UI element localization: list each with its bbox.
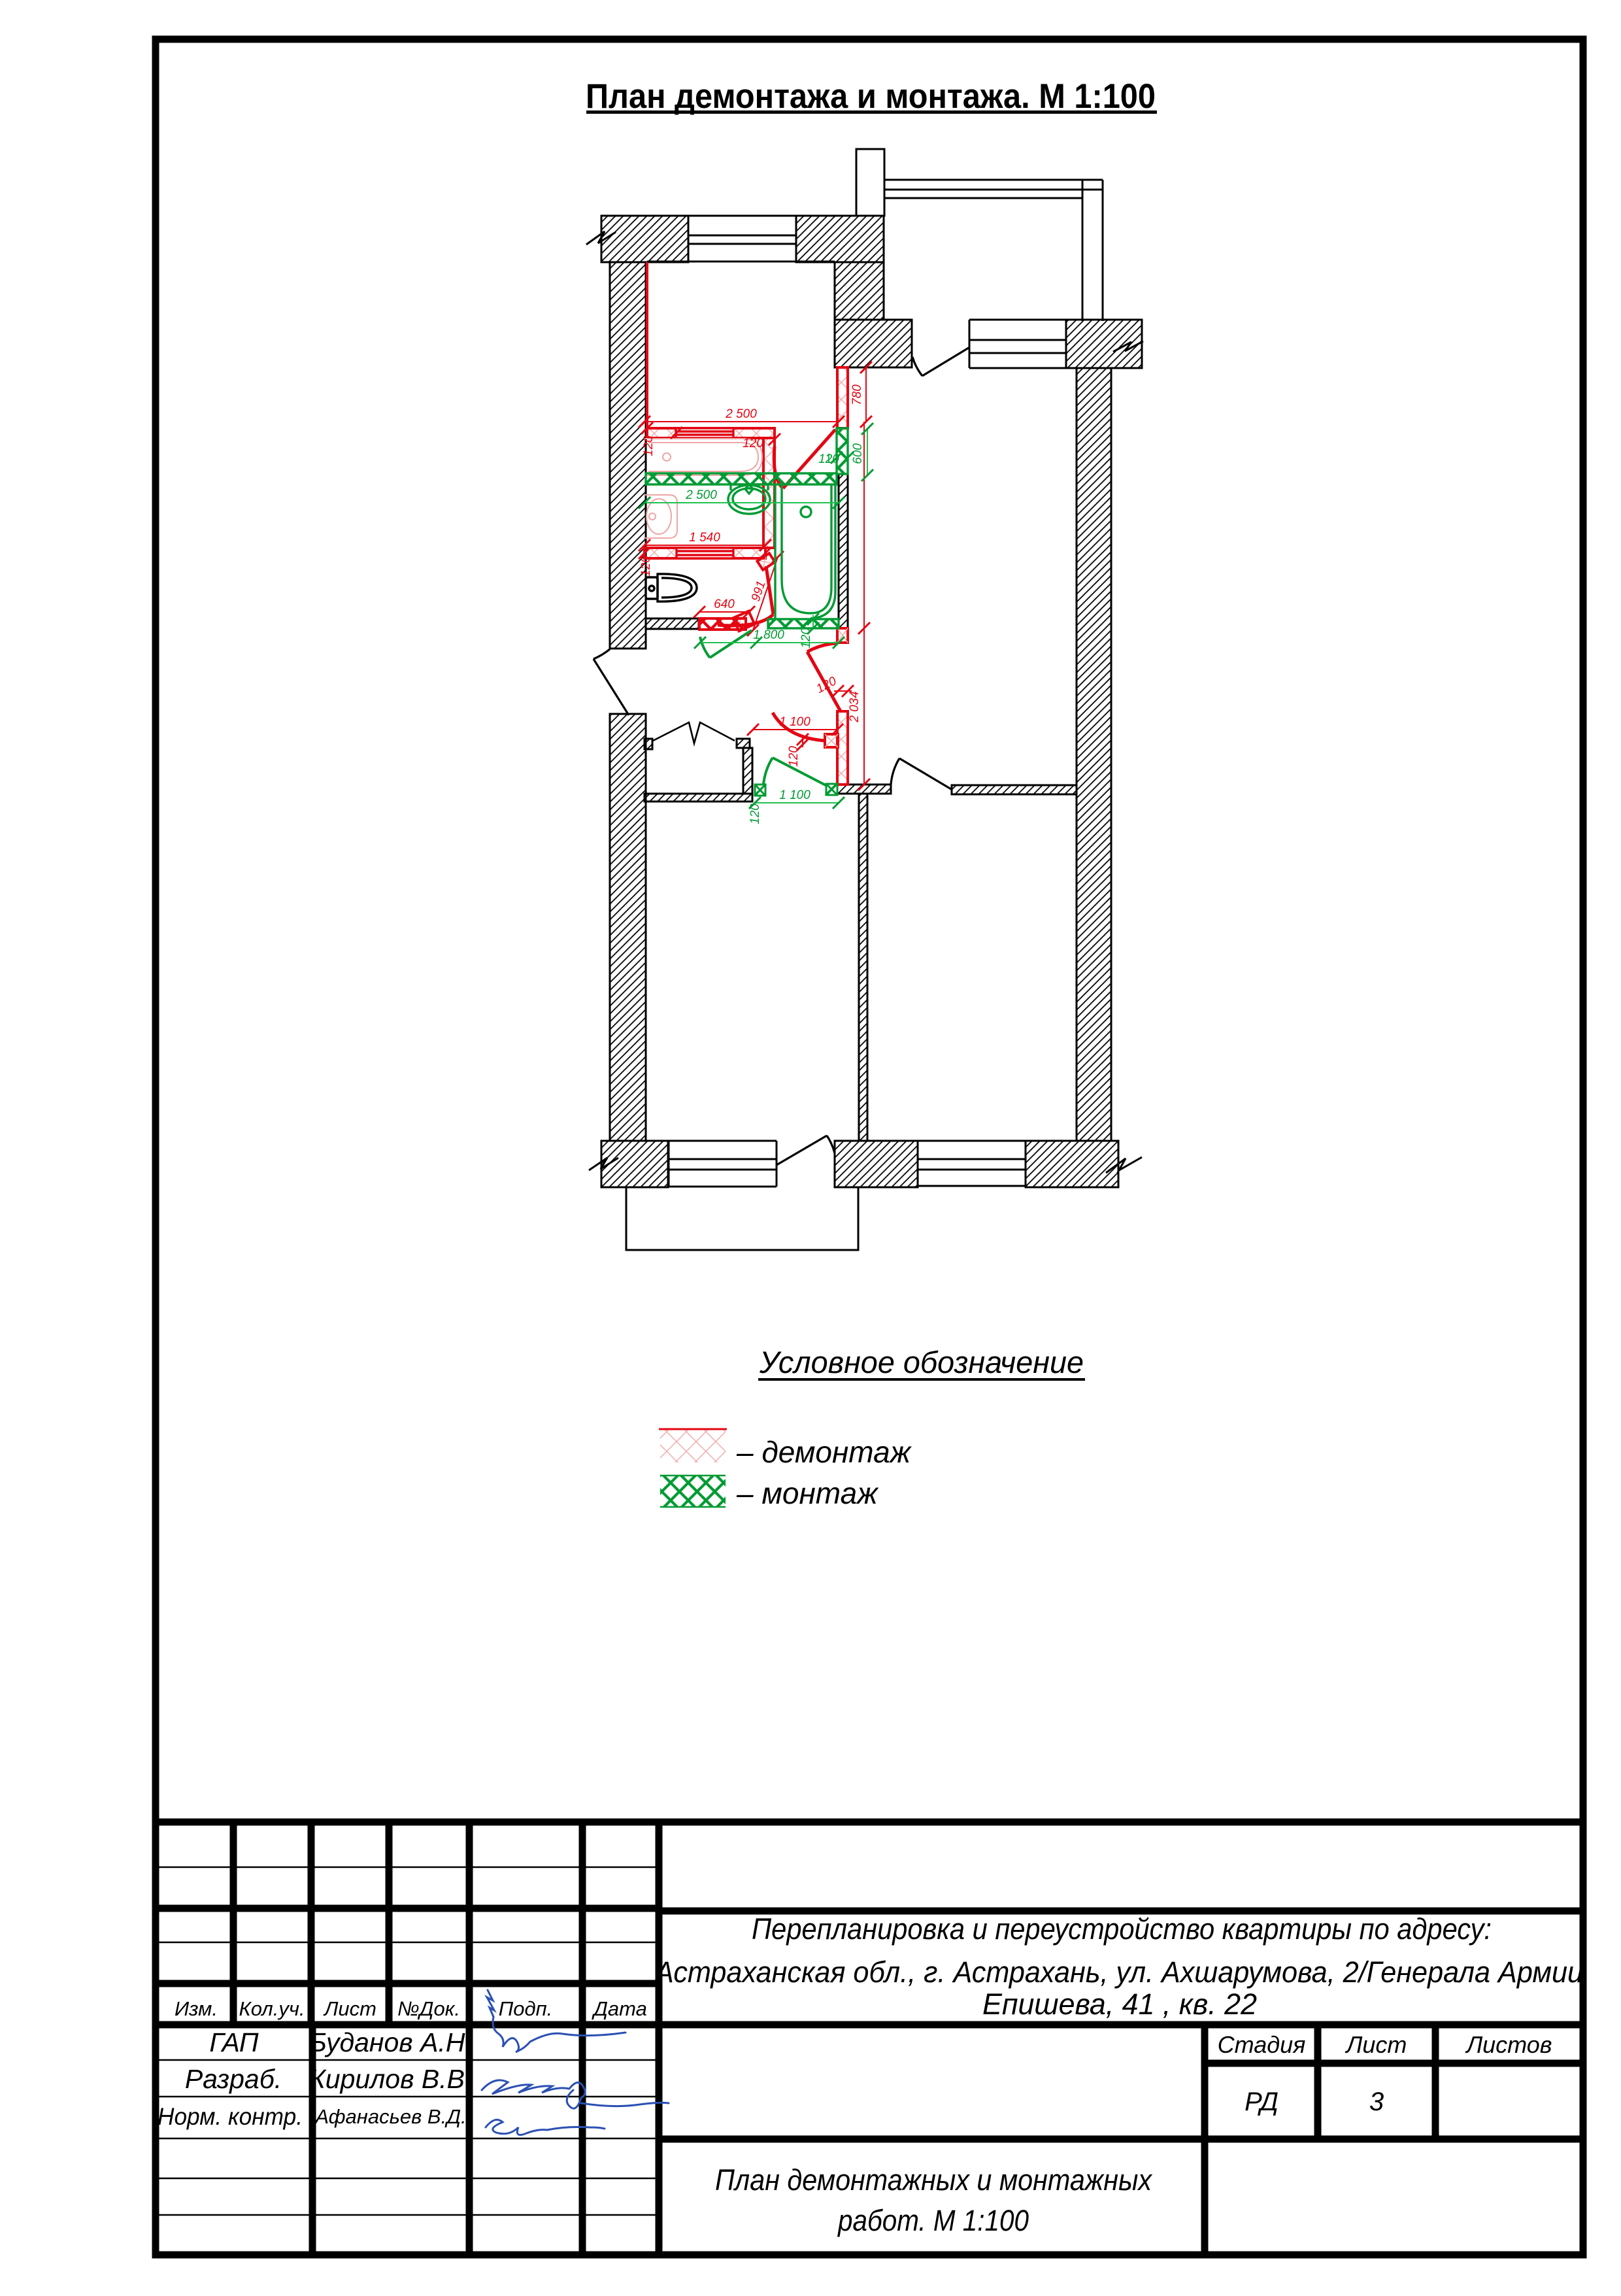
svg-text:Лист: Лист — [1345, 2031, 1407, 2058]
svg-text:2 500: 2 500 — [725, 407, 757, 421]
svg-text:120: 120 — [743, 437, 763, 450]
svg-text:120: 120 — [799, 628, 813, 649]
svg-text:640: 640 — [714, 598, 735, 611]
svg-text:600: 600 — [851, 443, 865, 464]
svg-text:Условное обозначение: Условное обозначение — [759, 1345, 1084, 1379]
svg-text:3: 3 — [1369, 2087, 1384, 2116]
svg-text:1 800: 1 800 — [753, 628, 784, 642]
svg-text:120: 120 — [642, 435, 656, 456]
svg-text:ГАП: ГАП — [209, 2027, 259, 2057]
svg-text:Кол.уч.: Кол.уч. — [239, 1997, 305, 2020]
svg-text:Кирилов В.В.: Кирилов В.В. — [310, 2064, 473, 2094]
svg-text:Стадия: Стадия — [1218, 2031, 1306, 2058]
svg-text:Изм.: Изм. — [175, 1997, 218, 2020]
svg-text:1 100: 1 100 — [779, 715, 811, 729]
svg-text:– демонтаж: – демонтаж — [736, 1435, 912, 1469]
svg-text:780: 780 — [850, 384, 864, 405]
svg-text:Астраханская обл., г. Астрахан: Астраханская обл., г. Астрахань, ул. Ахш… — [653, 1955, 1583, 1989]
svg-text:Буданов А.Н.: Буданов А.Н. — [309, 2027, 473, 2057]
svg-text:Дата: Дата — [592, 1997, 647, 2020]
svg-text:План демонтажа и монтажа. М 1:: План демонтажа и монтажа. М 1:100 — [586, 77, 1156, 116]
svg-text:120: 120 — [787, 746, 801, 767]
svg-text:1 540: 1 540 — [689, 531, 720, 545]
svg-text:Разраб.: Разраб. — [185, 2064, 282, 2094]
svg-text:120: 120 — [818, 452, 839, 466]
svg-text:120: 120 — [748, 803, 762, 824]
svg-text:№Док.: №Док. — [397, 1997, 460, 2020]
svg-text:1 100: 1 100 — [779, 788, 811, 802]
svg-text:РД: РД — [1245, 2087, 1278, 2116]
svg-text:Перепланировка и переустройств: Перепланировка и переустройство квартиры… — [752, 1912, 1492, 1946]
svg-text:2 500: 2 500 — [685, 488, 717, 502]
svg-text:– монтаж: – монтаж — [736, 1476, 879, 1510]
svg-text:120: 120 — [639, 556, 653, 577]
svg-text:Епишева, 41 , кв. 22: Епишева, 41 , кв. 22 — [982, 1987, 1257, 2021]
svg-text:Листов: Листов — [1465, 2031, 1552, 2058]
svg-text:работ. М 1:100: работ. М 1:100 — [837, 2204, 1029, 2237]
svg-text:Норм. контр.: Норм. контр. — [158, 2103, 303, 2130]
svg-text:Афанасьев В.Д.: Афанасьев В.Д. — [314, 2105, 466, 2128]
svg-text:Лист: Лист — [323, 1997, 376, 2020]
svg-text:2 034: 2 034 — [848, 691, 861, 723]
svg-text:План демонтажных и монтажных: План демонтажных и монтажных — [715, 2163, 1152, 2197]
svg-text:Подп.: Подп. — [499, 1997, 553, 2020]
